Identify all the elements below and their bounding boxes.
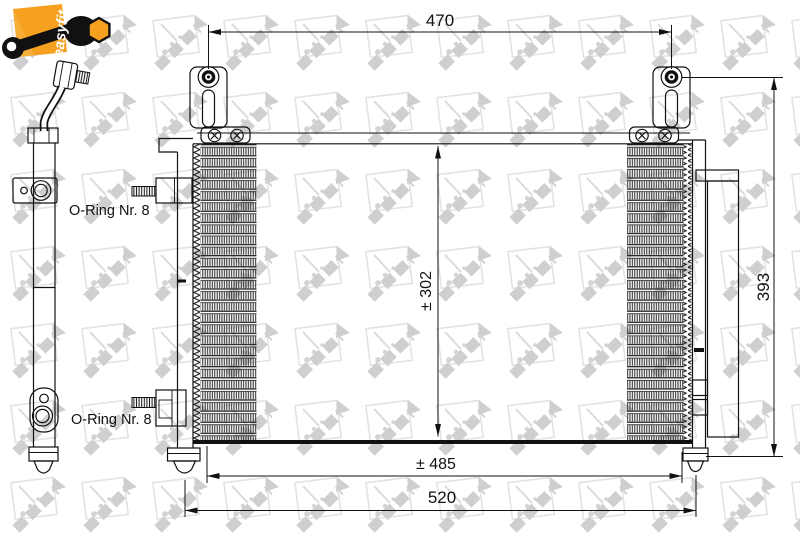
- oring-label-top: O-Ring Nr. 8: [69, 203, 150, 219]
- dim-label-470: 470: [426, 11, 454, 30]
- bolt-hex-icon: [89, 18, 110, 42]
- technical-drawing-page: easyfit: [0, 0, 800, 534]
- dim-label-302: ± 302: [418, 271, 435, 311]
- dim-label-393: 393: [754, 273, 773, 301]
- dim-label-485: ± 485: [416, 456, 456, 473]
- dim-label-520: 520: [428, 488, 456, 507]
- oring-label-bottom: O-Ring Nr. 8: [71, 412, 152, 428]
